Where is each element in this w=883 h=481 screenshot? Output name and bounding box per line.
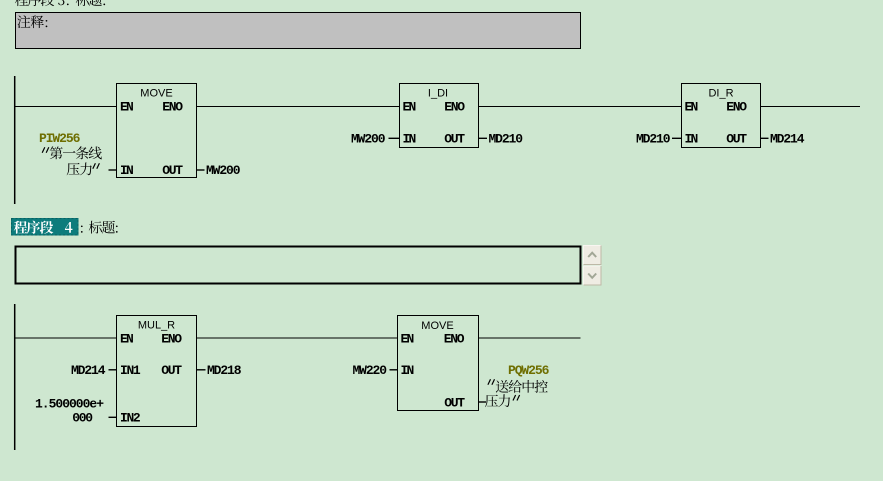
svg-text:ENO: ENO	[726, 100, 747, 115]
svg-text:ENO: ENO	[162, 100, 183, 115]
svg-text:MUL_R: MUL_R	[138, 320, 175, 332]
svg-text:EN: EN	[401, 332, 415, 347]
svg-text:PQW256: PQW256	[508, 363, 550, 378]
svg-text:DI_R: DI_R	[708, 88, 733, 100]
svg-text:IN: IN	[401, 363, 415, 378]
svg-text:PIW256: PIW256	[39, 131, 81, 146]
svg-text:IN: IN	[685, 132, 699, 147]
svg-text:IN: IN	[120, 163, 134, 178]
svg-text:EN: EN	[120, 100, 134, 115]
svg-text:I_DI: I_DI	[428, 88, 448, 100]
svg-text:MD214: MD214	[71, 363, 106, 378]
svg-text:MW220: MW220	[353, 363, 388, 378]
svg-text:000: 000	[72, 411, 93, 426]
svg-text:EN: EN	[403, 100, 417, 115]
svg-text:ENO: ENO	[444, 100, 465, 115]
svg-text:MD214: MD214	[770, 132, 805, 147]
svg-text:MOVE: MOVE	[140, 88, 172, 100]
svg-text:OUT: OUT	[444, 395, 465, 410]
svg-text:OUT: OUT	[162, 163, 183, 178]
svg-text:IN2: IN2	[120, 411, 141, 426]
svg-text:MD210: MD210	[489, 132, 524, 147]
svg-text:IN1: IN1	[120, 363, 141, 378]
svg-text:ENO: ENO	[161, 332, 182, 347]
svg-text:MW200: MW200	[206, 163, 241, 178]
svg-text:MD210: MD210	[636, 132, 671, 147]
svg-text:OUT: OUT	[161, 363, 182, 378]
svg-text:ENO: ENO	[444, 332, 465, 347]
svg-text:IN: IN	[403, 132, 417, 147]
svg-text:MD218: MD218	[207, 363, 242, 378]
svg-text:1.500000e+: 1.500000e+	[35, 397, 104, 412]
svg-text:OUT: OUT	[444, 132, 465, 147]
svg-text:MW200: MW200	[351, 132, 386, 147]
svg-text:MOVE: MOVE	[421, 320, 453, 332]
svg-text:OUT: OUT	[726, 132, 747, 147]
svg-text:EN: EN	[120, 332, 134, 347]
svg-text:EN: EN	[685, 100, 699, 115]
